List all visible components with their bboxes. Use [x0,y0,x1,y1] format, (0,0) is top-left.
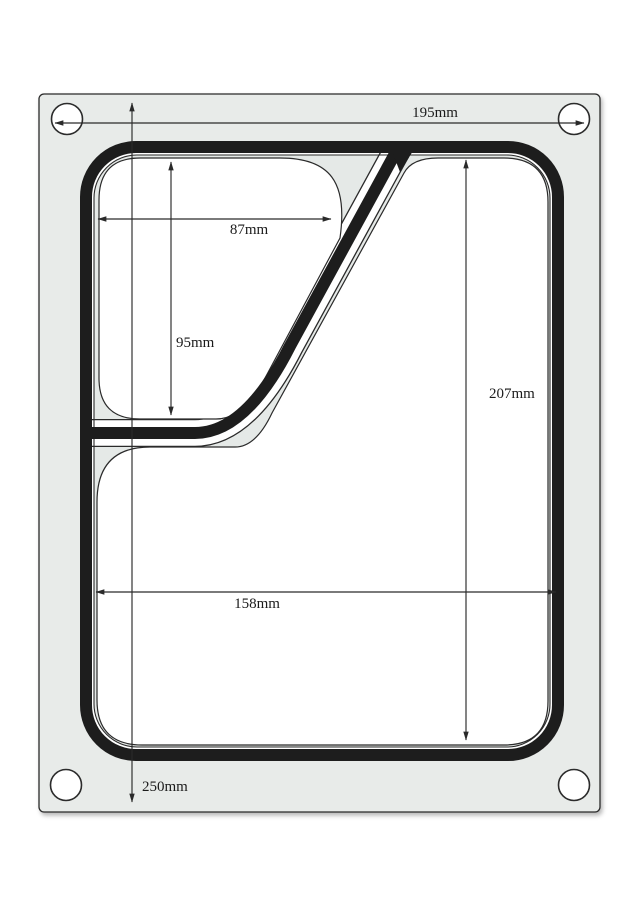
dim-label-small-compartment-height: 95mm [176,335,215,351]
sealing-matrix-diagram: 195mm 87mm 95mm 207mm 158mm 250mm [0,0,640,906]
dim-label-large-compartment-width: 158mm [234,596,280,612]
mounting-hole-bottom-right [559,770,590,801]
mounting-hole-top-left [52,104,83,135]
dim-label-plate-height: 250mm [142,779,188,795]
dim-label-plate-width: 195mm [412,105,458,121]
dim-label-small-compartment-width: 87mm [230,222,269,238]
technical-drawing-page: 195mm 87mm 95mm 207mm 158mm 250mm [0,0,640,906]
mounting-hole-bottom-left [51,770,82,801]
mounting-hole-top-right [559,104,590,135]
dim-label-large-compartment-height: 207mm [489,386,535,402]
